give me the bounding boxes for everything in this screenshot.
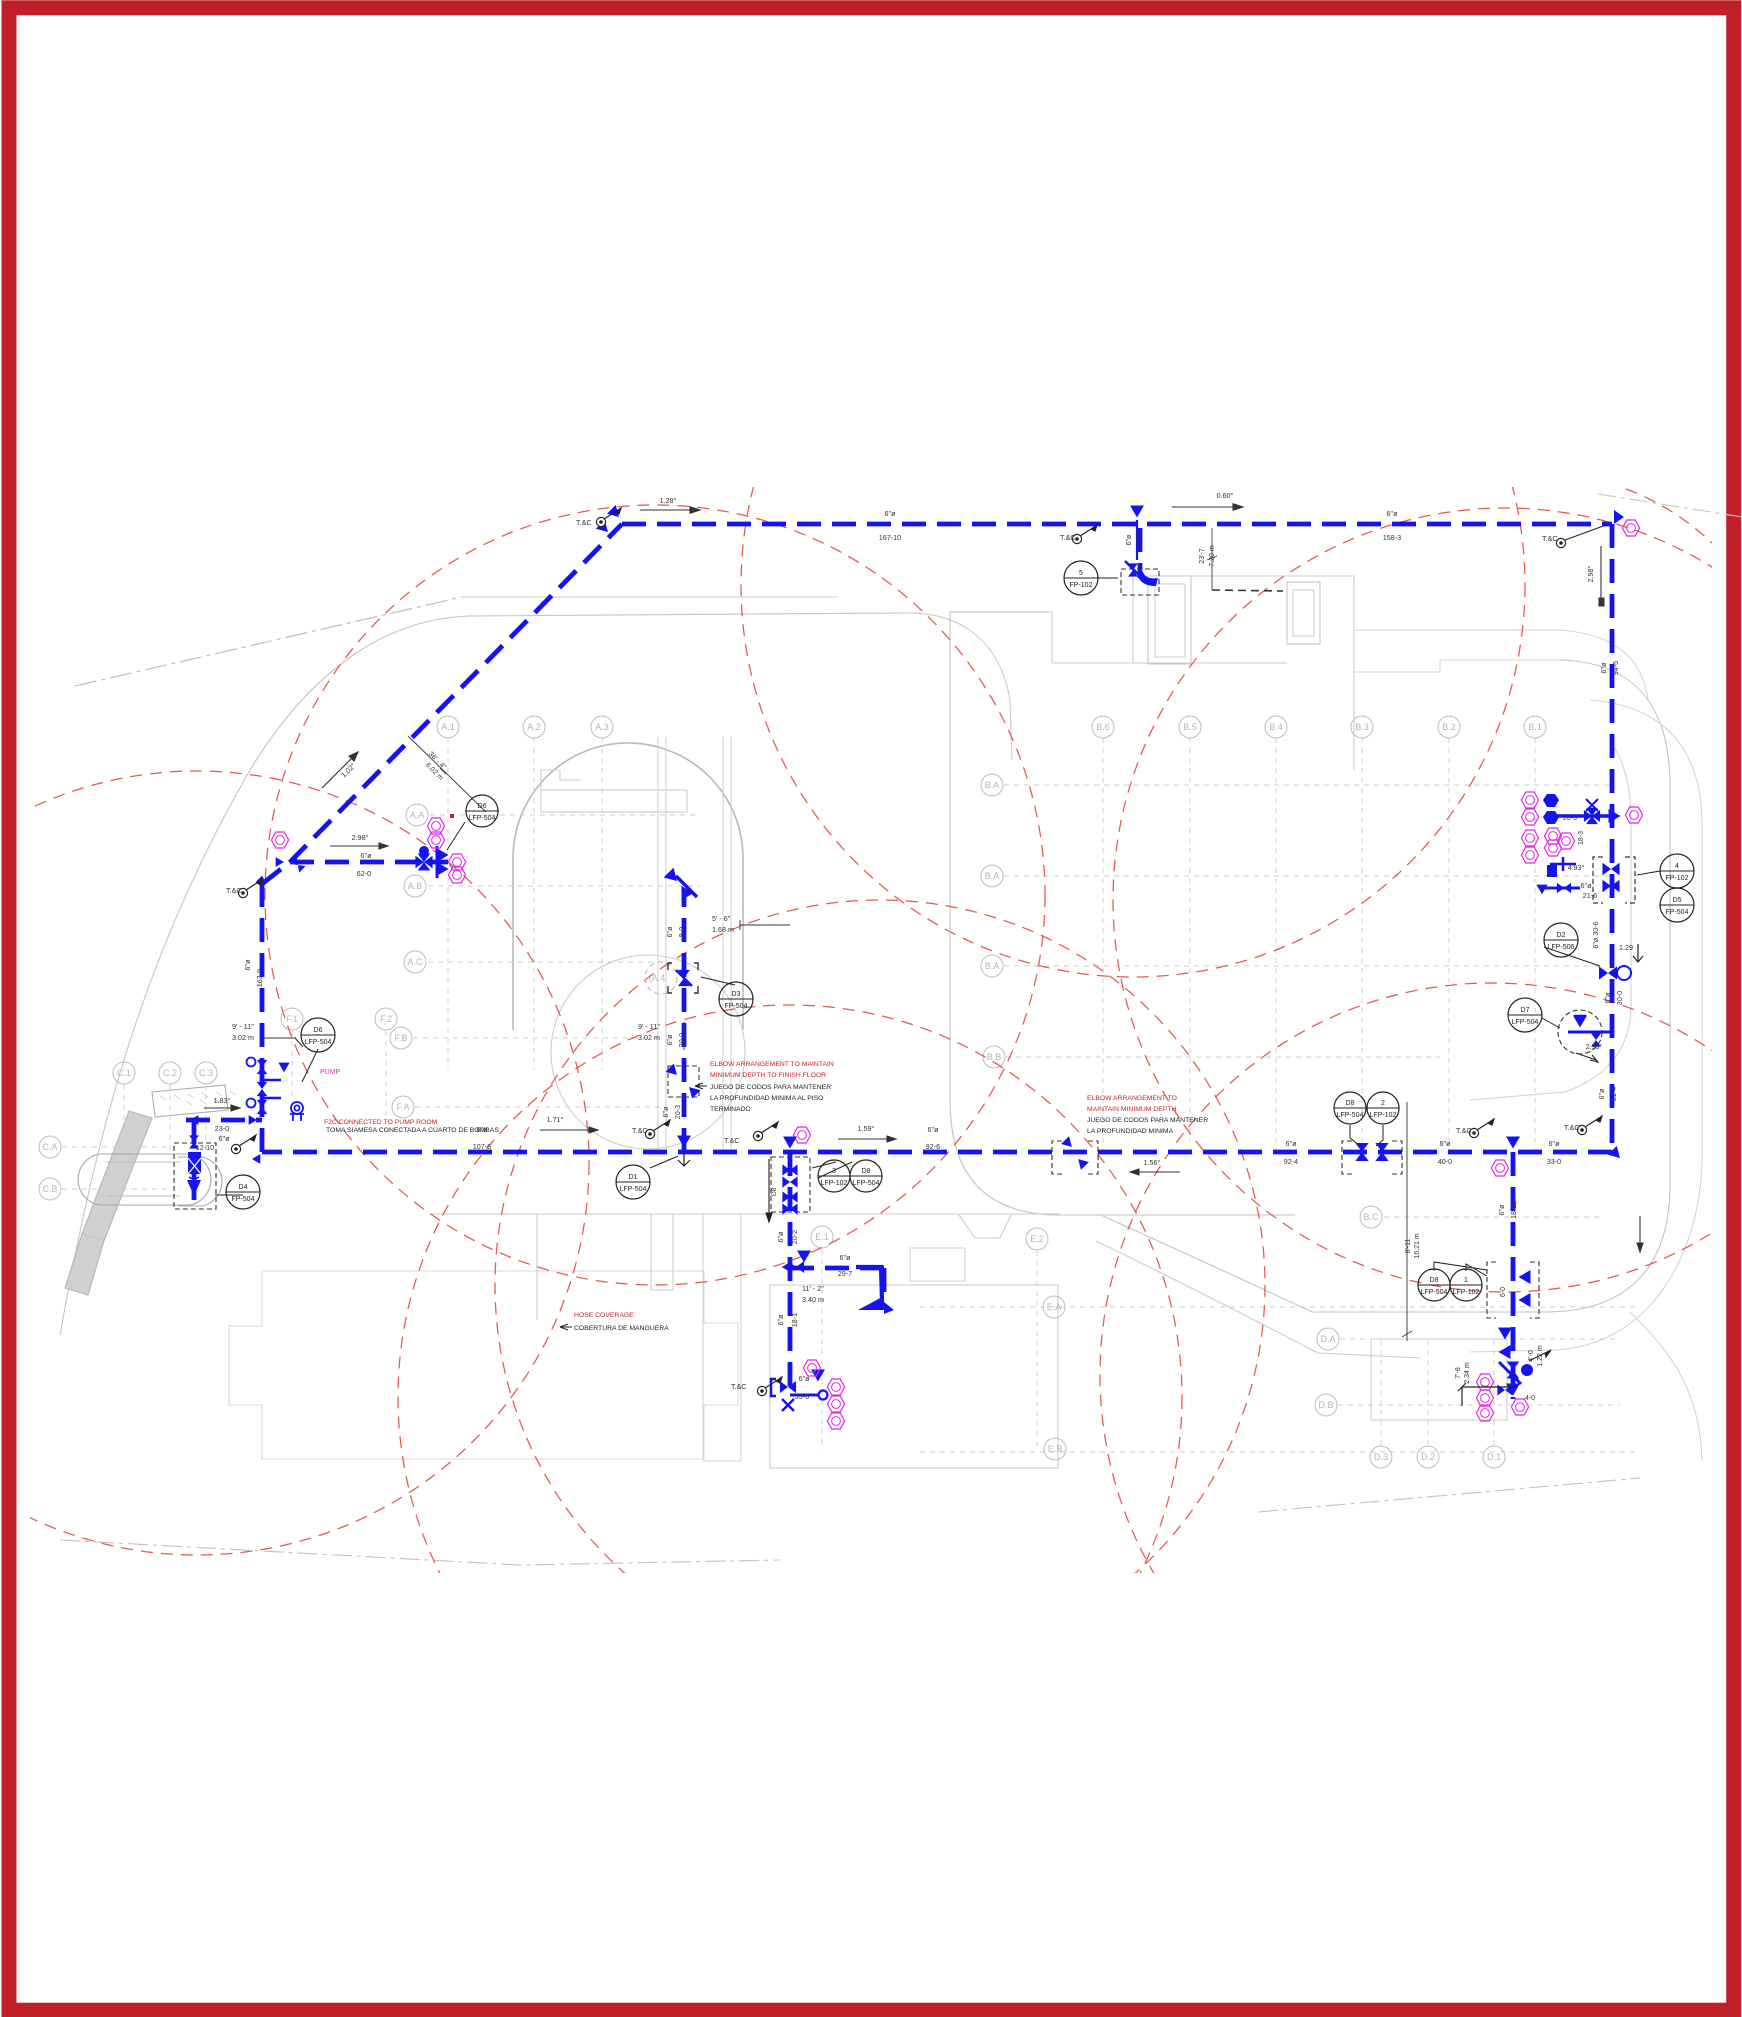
svg-text:6"ø: 6"ø bbox=[361, 851, 373, 860]
svg-text:20-3: 20-3 bbox=[673, 1105, 682, 1119]
svg-text:T.&C: T.&C bbox=[632, 1126, 648, 1135]
svg-text:A.3: A.3 bbox=[595, 722, 609, 732]
svg-text:6"ø: 6"ø bbox=[885, 509, 897, 518]
svg-text:D8: D8 bbox=[1430, 1277, 1439, 1284]
svg-text:20-0: 20-0 bbox=[677, 1033, 686, 1047]
svg-text:6"ø: 6"ø bbox=[1597, 1088, 1606, 1100]
svg-text:A.1: A.1 bbox=[441, 722, 455, 732]
svg-text:6"ø: 6"ø bbox=[665, 1034, 674, 1046]
svg-text:6"ø 30-6: 6"ø 30-6 bbox=[1591, 921, 1600, 948]
svg-text:1.56°: 1.56° bbox=[1144, 1158, 1161, 1167]
svg-text:4-0: 4-0 bbox=[1525, 1395, 1535, 1402]
svg-text:92-6: 92-6 bbox=[926, 1142, 940, 1151]
svg-text:D8: D8 bbox=[1346, 1100, 1355, 1107]
svg-text:C.B: C.B bbox=[42, 1184, 57, 1194]
svg-text:D6: D6 bbox=[478, 803, 487, 810]
svg-text:A.2: A.2 bbox=[527, 722, 541, 732]
svg-text:6"ø: 6"ø bbox=[1497, 1204, 1506, 1216]
svg-text:1.68 m: 1.68 m bbox=[712, 925, 734, 934]
svg-text:D5: D5 bbox=[1673, 897, 1682, 904]
svg-text:LFP-504: LFP-504 bbox=[1512, 1019, 1539, 1026]
svg-text:T.&C: T.&C bbox=[1456, 1126, 1472, 1135]
svg-text:E.2: E.2 bbox=[1030, 1234, 1044, 1244]
svg-text:A.B: A.B bbox=[408, 881, 423, 891]
svg-text:1.22 m: 1.22 m bbox=[1537, 1345, 1544, 1367]
svg-text:B.A: B.A bbox=[985, 961, 1000, 971]
svg-text:7.20 m: 7.20 m bbox=[1209, 545, 1216, 567]
svg-text:2.34 m: 2.34 m bbox=[1464, 1362, 1471, 1384]
svg-text:158-3: 158-3 bbox=[1383, 533, 1401, 542]
svg-text:7'-8: 7'-8 bbox=[1455, 1367, 1462, 1379]
svg-text:3.02 m: 3.02 m bbox=[638, 1033, 660, 1042]
svg-text:23-0: 23-0 bbox=[215, 1124, 229, 1133]
svg-text:FP-504: FP-504 bbox=[232, 1196, 255, 1203]
svg-text:LFP-504: LFP-504 bbox=[1337, 1112, 1364, 1119]
svg-text:LFP-504: LFP-504 bbox=[305, 1039, 332, 1046]
svg-text:9' - 11": 9' - 11" bbox=[232, 1022, 254, 1031]
svg-text:94-5: 94-5 bbox=[1611, 661, 1620, 675]
svg-text:6"ø: 6"ø bbox=[1599, 662, 1608, 674]
svg-text:1.83°: 1.83° bbox=[214, 1096, 231, 1105]
svg-text:T.&C: T.&C bbox=[731, 1382, 747, 1391]
svg-text:ELBOW ARRANGEMENT TO: ELBOW ARRANGEMENT TO bbox=[1087, 1095, 1177, 1102]
svg-text:PUMP: PUMP bbox=[320, 1069, 341, 1076]
svg-text:2.98°: 2.98° bbox=[352, 833, 369, 842]
svg-text:6"ø: 6"ø bbox=[661, 1106, 670, 1118]
svg-text:40-0: 40-0 bbox=[1438, 1157, 1452, 1166]
svg-text:53-6: 53-6 bbox=[795, 1392, 809, 1401]
svg-text:JUEGO DE CODOS PARA MANTENER: JUEGO DE CODOS PARA MANTENER bbox=[1087, 1117, 1208, 1124]
svg-text:T.&C: T.&C bbox=[1564, 1123, 1580, 1132]
svg-text:167-10: 167-10 bbox=[879, 533, 901, 542]
svg-text:T.&C: T.&C bbox=[1542, 534, 1558, 543]
svg-text:C.3: C.3 bbox=[199, 1068, 213, 1078]
svg-text:B.B: B.B bbox=[987, 1052, 1002, 1062]
svg-text:HOSE COVERAGE: HOSE COVERAGE bbox=[574, 1312, 634, 1319]
svg-text:C.2: C.2 bbox=[163, 1068, 177, 1078]
svg-text:6"ø: 6"ø bbox=[665, 926, 674, 938]
svg-text:D8: D8 bbox=[862, 1168, 871, 1175]
svg-text:21-6: 21-6 bbox=[1583, 891, 1597, 900]
svg-text:E.A: E.A bbox=[1047, 1302, 1062, 1312]
svg-text:LFP-504: LFP-504 bbox=[853, 1180, 880, 1187]
svg-text:D3: D3 bbox=[732, 991, 741, 998]
svg-text:2.98°: 2.98° bbox=[1586, 565, 1595, 582]
svg-text:6"ø: 6"ø bbox=[799, 1374, 811, 1383]
svg-text:6"ø: 6"ø bbox=[1549, 1139, 1561, 1148]
svg-text:LFP-102: LFP-102 bbox=[821, 1180, 848, 1187]
svg-text:B.2: B.2 bbox=[1442, 722, 1456, 732]
svg-text:3: 3 bbox=[832, 1168, 836, 1175]
svg-text:D6: D6 bbox=[314, 1027, 323, 1034]
svg-text:6"ø: 6"ø bbox=[776, 1231, 785, 1243]
svg-text:D1: D1 bbox=[629, 1174, 638, 1181]
svg-text:92-4: 92-4 bbox=[1284, 1157, 1298, 1166]
svg-text:LFP-506: LFP-506 bbox=[1548, 944, 1575, 951]
svg-text:31-4: 31-4 bbox=[1609, 1087, 1618, 1101]
svg-text:MAINTAIN MINIMUM DEPTH: MAINTAIN MINIMUM DEPTH bbox=[1087, 1106, 1176, 1113]
svg-text:TERMINADO: TERMINADO bbox=[710, 1106, 751, 1113]
svg-text:D7: D7 bbox=[1521, 1007, 1530, 1014]
svg-text:8'-11: 8'-11 bbox=[1405, 1238, 1412, 1253]
svg-text:5: 5 bbox=[1079, 570, 1083, 577]
svg-text:C.1: C.1 bbox=[117, 1068, 131, 1078]
svg-text:F.A: F.A bbox=[396, 1102, 409, 1112]
svg-text:20-2: 20-2 bbox=[790, 1230, 799, 1244]
svg-text:1.29: 1.29 bbox=[1619, 943, 1633, 952]
svg-text:D8: D8 bbox=[771, 1187, 778, 1196]
svg-text:2: 2 bbox=[1381, 1100, 1385, 1107]
svg-text:1.71°: 1.71° bbox=[547, 1115, 564, 1124]
svg-text:3.40 m: 3.40 m bbox=[802, 1295, 824, 1304]
svg-text:6"ø: 6"ø bbox=[1603, 992, 1612, 1004]
svg-text:LFP-102: LFP-102 bbox=[1370, 1112, 1397, 1119]
svg-text:6"ø: 6"ø bbox=[1581, 881, 1593, 890]
svg-text:6"ø: 6"ø bbox=[1387, 509, 1399, 518]
svg-text:ELBOW ARRANGEMENT TO MAINTAIN: ELBOW ARRANGEMENT TO MAINTAIN bbox=[710, 1061, 834, 1068]
svg-text:B.3: B.3 bbox=[1355, 722, 1369, 732]
svg-text:62-0: 62-0 bbox=[357, 869, 371, 878]
svg-text:LA PROFUNDIDAD MINIMA: LA PROFUNDIDAD MINIMA bbox=[1087, 1128, 1174, 1135]
svg-text:9' - 11": 9' - 11" bbox=[638, 1022, 660, 1031]
svg-text:D4: D4 bbox=[239, 1184, 248, 1191]
svg-text:C.A: C.A bbox=[42, 1142, 57, 1152]
svg-text:23'-7: 23'-7 bbox=[1199, 548, 1206, 563]
svg-text:T.&C: T.&C bbox=[576, 518, 592, 527]
svg-text:B.A: B.A bbox=[985, 871, 1000, 881]
svg-text:4: 4 bbox=[1675, 863, 1679, 870]
svg-text:LFP-504: LFP-504 bbox=[620, 1186, 647, 1193]
svg-text:6-0: 6-0 bbox=[1500, 1287, 1507, 1297]
svg-text:D.A: D.A bbox=[1320, 1334, 1335, 1344]
svg-text:1.59°: 1.59° bbox=[858, 1124, 875, 1133]
svg-text:107-6: 107-6 bbox=[473, 1142, 491, 1151]
svg-text:FP-504: FP-504 bbox=[1666, 909, 1689, 916]
svg-text:COBERTURA DE MANGUERA: COBERTURA DE MANGUERA bbox=[574, 1325, 669, 1332]
svg-text:4.93°: 4.93° bbox=[1568, 863, 1585, 872]
svg-text:1.02°: 1.02° bbox=[339, 761, 357, 779]
svg-text:6"ø: 6"ø bbox=[1286, 1139, 1298, 1148]
svg-text:T.&C: T.&C bbox=[226, 886, 242, 895]
svg-text:B.4: B.4 bbox=[1269, 722, 1283, 732]
svg-text:B.C: B.C bbox=[1363, 1212, 1379, 1222]
svg-text:B.A: B.A bbox=[985, 780, 1000, 790]
svg-text:F2C CONNECTED TO PUMP ROOM: F2C CONNECTED TO PUMP ROOM bbox=[324, 1119, 438, 1126]
svg-text:18-3: 18-3 bbox=[1578, 831, 1585, 845]
svg-text:0.60°: 0.60° bbox=[1217, 491, 1234, 500]
svg-text:LFP-504: LFP-504 bbox=[469, 815, 496, 822]
svg-text:20-3: 20-3 bbox=[1563, 815, 1577, 822]
svg-text:LA PROFUNDIDAD MINIMA AL PISO: LA PROFUNDIDAD MINIMA AL PISO bbox=[710, 1095, 823, 1102]
svg-text:B.1: B.1 bbox=[1528, 722, 1542, 732]
svg-text:T.&C: T.&C bbox=[1060, 533, 1076, 542]
svg-text:A.C: A.C bbox=[407, 957, 423, 967]
svg-text:17-0: 17-0 bbox=[1136, 533, 1143, 547]
svg-text:30-0: 30-0 bbox=[1615, 991, 1624, 1005]
svg-text:JUEGO DE CODOS PARA MANTENER: JUEGO DE CODOS PARA MANTENER bbox=[710, 1084, 831, 1091]
svg-text:FP-102: FP-102 bbox=[1666, 875, 1689, 882]
svg-text:4'-0: 4'-0 bbox=[1528, 1350, 1535, 1362]
svg-text:6"ø: 6"ø bbox=[840, 1253, 852, 1262]
svg-text:6"ø: 6"ø bbox=[477, 1125, 489, 1134]
svg-text:D.1: D.1 bbox=[1487, 1452, 1501, 1462]
svg-text:18-11: 18-11 bbox=[1509, 1201, 1518, 1219]
svg-text:E.1: E.1 bbox=[815, 1232, 829, 1242]
svg-text:6"ø: 6"ø bbox=[243, 959, 252, 971]
svg-text:D2: D2 bbox=[1557, 932, 1566, 939]
svg-text:TOMA SIAMESA CONECTADA A CUART: TOMA SIAMESA CONECTADA A CUARTO DE BOMBA… bbox=[326, 1127, 499, 1134]
svg-text:1: 1 bbox=[1464, 1277, 1468, 1284]
svg-text:(A.4: (A.4 bbox=[649, 973, 666, 983]
svg-text:D.2: D.2 bbox=[1421, 1452, 1435, 1462]
svg-text:1.28°: 1.28° bbox=[660, 496, 677, 505]
svg-text:163-9: 163-9 bbox=[255, 969, 264, 987]
svg-text:A.A: A.A bbox=[410, 810, 425, 820]
svg-text:6"ø: 6"ø bbox=[1440, 1139, 1452, 1148]
svg-text:33-0: 33-0 bbox=[1547, 1157, 1561, 1166]
svg-text:6"ø: 6"ø bbox=[1126, 534, 1133, 545]
svg-text:18-1: 18-1 bbox=[790, 1313, 799, 1327]
svg-text:E.B: E.B bbox=[1048, 1444, 1063, 1454]
svg-text:MINIMUM DEPTH TO FINISH FLOOR: MINIMUM DEPTH TO FINISH FLOOR bbox=[710, 1072, 826, 1079]
svg-text:FP-504: FP-504 bbox=[725, 1003, 748, 1010]
svg-text:2.93°: 2.93° bbox=[1586, 1043, 1603, 1051]
svg-text:6"ø: 6"ø bbox=[928, 1125, 940, 1134]
svg-text:LFP-102: LFP-102 bbox=[1453, 1289, 1480, 1296]
svg-text:12-10: 12-10 bbox=[196, 1143, 214, 1152]
svg-text:FP-102: FP-102 bbox=[1070, 582, 1093, 589]
svg-text:11' - 2": 11' - 2" bbox=[802, 1284, 824, 1293]
svg-text:D.B: D.B bbox=[1318, 1400, 1333, 1410]
svg-text:B.5: B.5 bbox=[1183, 722, 1197, 732]
svg-text:F.2: F.2 bbox=[380, 1014, 392, 1024]
svg-text:16.21 m: 16.21 m bbox=[1414, 1233, 1421, 1258]
svg-text:3.02 m: 3.02 m bbox=[232, 1033, 254, 1042]
svg-text:B.6: B.6 bbox=[1096, 722, 1110, 732]
svg-text:F.B: F.B bbox=[394, 1033, 407, 1043]
svg-text:29-7: 29-7 bbox=[838, 1269, 852, 1278]
svg-text:D.3: D.3 bbox=[1374, 1452, 1388, 1462]
svg-text:8-0: 8-0 bbox=[677, 927, 686, 937]
svg-text:T.&C: T.&C bbox=[724, 1136, 740, 1145]
svg-text:5' - 6": 5' - 6" bbox=[712, 914, 731, 923]
svg-text:LFP-504: LFP-504 bbox=[1421, 1289, 1448, 1296]
svg-text:6"ø: 6"ø bbox=[776, 1314, 785, 1326]
svg-text:F.1: F.1 bbox=[286, 1014, 298, 1024]
svg-text:6"ø: 6"ø bbox=[219, 1134, 231, 1143]
